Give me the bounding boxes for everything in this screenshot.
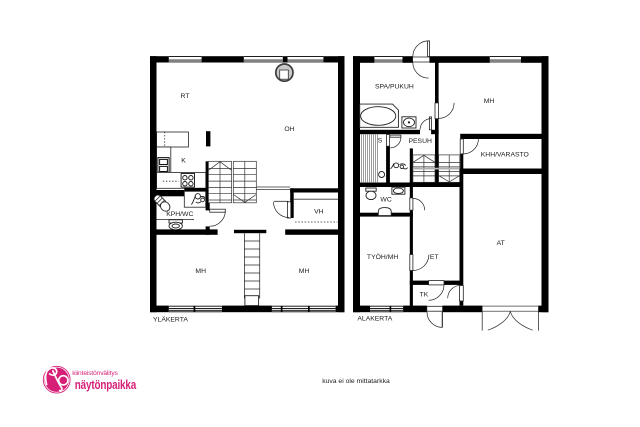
svg-text:TYÖH/MH: TYÖH/MH [367,253,398,261]
svg-text:S: S [378,138,383,145]
svg-text:näytönpaikka: näytönpaikka [75,379,137,393]
svg-text:ET: ET [430,254,439,261]
svg-text:KHH/VARASTO: KHH/VARASTO [481,152,529,159]
svg-text:RT: RT [181,93,190,100]
svg-text:OH: OH [284,126,294,133]
svg-text:WC: WC [380,197,391,204]
svg-text:MH: MH [195,268,206,275]
svg-text:KPH/WC: KPH/WC [166,211,193,218]
svg-text:SPA/PUKUH: SPA/PUKUH [375,84,414,91]
svg-text:ALAKERTA: ALAKERTA [357,315,392,322]
svg-text:VH: VH [314,208,324,215]
svg-text:YLÄKERTA: YLÄKERTA [153,316,188,324]
svg-text:kiinteistönvälitys: kiinteistönvälitys [72,370,118,377]
svg-text:K: K [181,158,186,165]
svg-text:MH: MH [484,98,495,105]
svg-text:MH: MH [299,268,310,275]
svg-text:PESUH: PESUH [408,138,432,145]
svg-text:AT: AT [497,240,505,247]
svg-text:kuva ei ole mittatarkka: kuva ei ole mittatarkka [322,378,390,385]
svg-text:TK: TK [420,291,429,298]
